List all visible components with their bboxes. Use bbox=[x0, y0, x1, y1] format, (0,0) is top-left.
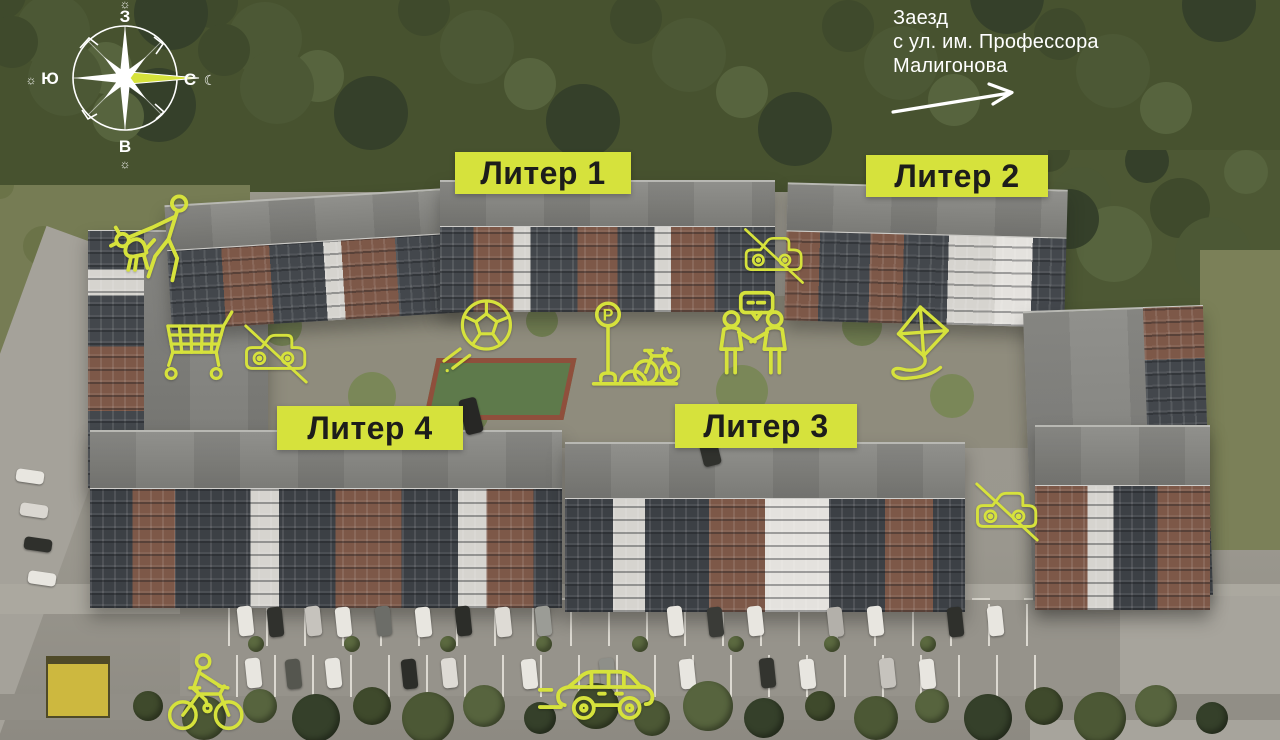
tree bbox=[652, 18, 726, 92]
tree bbox=[504, 58, 556, 110]
entrance-arrow-icon bbox=[890, 82, 1018, 118]
tree bbox=[1074, 692, 1126, 740]
parking-row bbox=[236, 655, 1036, 697]
tree bbox=[634, 700, 670, 736]
tree bbox=[1025, 687, 1063, 725]
building-label-liter-3[interactable]: Литер 3 bbox=[675, 404, 857, 448]
tree bbox=[292, 694, 340, 740]
tree bbox=[930, 374, 974, 418]
building-liter-1 bbox=[440, 180, 775, 312]
compass-rose: З Ю С В ☼ ☼ ☾ ☼ bbox=[18, 0, 246, 174]
sun-icon: ☼ bbox=[120, 157, 131, 171]
tree bbox=[716, 66, 768, 118]
parked-car bbox=[746, 605, 764, 636]
tree bbox=[824, 636, 840, 652]
tree bbox=[805, 691, 835, 721]
parked-car bbox=[946, 606, 964, 637]
parked-car bbox=[266, 606, 284, 637]
parked-car bbox=[706, 606, 724, 637]
tree bbox=[915, 689, 949, 723]
tree bbox=[353, 687, 391, 725]
parked-car bbox=[986, 605, 1004, 636]
building-liter-2 bbox=[784, 182, 1068, 327]
tree bbox=[822, 0, 874, 52]
grass-right bbox=[1200, 250, 1280, 550]
compass-east-label: В bbox=[119, 137, 131, 156]
building-liter-3 bbox=[565, 442, 965, 612]
tree bbox=[1125, 150, 1169, 183]
parked-car bbox=[826, 606, 844, 637]
tree bbox=[243, 689, 277, 723]
entrance-note-line: Малигонова bbox=[893, 54, 1099, 78]
entrance-note: Заезд с ул. им. Профессора Малигонова bbox=[893, 6, 1099, 78]
parked-car bbox=[758, 657, 776, 688]
building-liter-4 bbox=[90, 430, 562, 608]
building-label-liter-1[interactable]: Литер 1 bbox=[455, 152, 631, 194]
parked-car bbox=[666, 605, 684, 636]
compass-south-label: Ю bbox=[41, 69, 59, 88]
building-back-left bbox=[164, 187, 471, 330]
roof bbox=[565, 442, 965, 498]
tree bbox=[240, 50, 314, 124]
tree bbox=[334, 76, 408, 150]
parked-car bbox=[520, 658, 538, 689]
kiosk bbox=[46, 656, 110, 718]
tree bbox=[248, 636, 264, 652]
parked-car bbox=[454, 605, 472, 636]
tree bbox=[1182, 0, 1256, 42]
moon-icon: ☾ bbox=[204, 72, 217, 88]
parked-car bbox=[236, 605, 254, 636]
tree bbox=[573, 683, 619, 729]
tree bbox=[1140, 82, 1192, 134]
entrance-note-line: Заезд bbox=[893, 6, 1099, 30]
tree bbox=[440, 10, 514, 84]
parked-car bbox=[798, 658, 816, 689]
tree bbox=[683, 681, 733, 731]
facade bbox=[565, 498, 965, 612]
parked-car bbox=[878, 657, 896, 688]
tree bbox=[1135, 685, 1177, 727]
parked-car bbox=[244, 657, 262, 688]
tree bbox=[854, 696, 898, 740]
tree bbox=[1196, 702, 1228, 734]
parking-lot bbox=[180, 600, 1120, 696]
tree bbox=[964, 694, 1012, 740]
tree bbox=[546, 84, 620, 158]
facade bbox=[1035, 485, 1210, 610]
parked-car bbox=[374, 605, 392, 636]
masterplan-render: З Ю С В ☼ ☼ ☾ ☼ Заезд с ул. им. Профессо… bbox=[0, 0, 1280, 740]
tree bbox=[440, 636, 456, 652]
tree bbox=[920, 636, 936, 652]
roof bbox=[1035, 425, 1210, 485]
parked-car bbox=[534, 605, 552, 636]
parked-car bbox=[400, 658, 418, 689]
facade bbox=[90, 488, 562, 608]
tree bbox=[133, 691, 163, 721]
tree bbox=[402, 692, 454, 740]
tree bbox=[182, 696, 226, 740]
sun-icon: ☼ bbox=[120, 0, 131, 11]
parked-car bbox=[866, 605, 884, 636]
tree bbox=[744, 698, 784, 738]
parked-car bbox=[334, 606, 352, 637]
tree bbox=[536, 636, 552, 652]
tree bbox=[463, 685, 505, 727]
tree bbox=[0, 185, 14, 199]
parked-car bbox=[284, 658, 302, 689]
building-label-liter-4[interactable]: Литер 4 bbox=[277, 406, 463, 450]
tree bbox=[758, 92, 832, 166]
parked-car bbox=[414, 606, 432, 637]
compass-north-label: С bbox=[184, 70, 196, 89]
building-label-liter-2[interactable]: Литер 2 bbox=[866, 155, 1048, 197]
parked-car bbox=[324, 657, 342, 688]
tree bbox=[398, 0, 450, 36]
facade bbox=[440, 226, 775, 312]
entrance-note-line: с ул. им. Профессора bbox=[893, 30, 1099, 54]
tree bbox=[1048, 150, 1070, 172]
parked-car bbox=[304, 605, 322, 636]
tree bbox=[344, 636, 360, 652]
parked-car bbox=[440, 657, 458, 688]
sun-icon: ☼ bbox=[26, 73, 37, 87]
tree bbox=[728, 636, 744, 652]
building-right-front bbox=[1035, 425, 1210, 610]
tree bbox=[524, 702, 556, 734]
tree bbox=[610, 0, 662, 44]
tree bbox=[632, 636, 648, 652]
parked-car bbox=[494, 606, 512, 637]
tree bbox=[1224, 150, 1268, 194]
parked-car bbox=[918, 658, 936, 689]
